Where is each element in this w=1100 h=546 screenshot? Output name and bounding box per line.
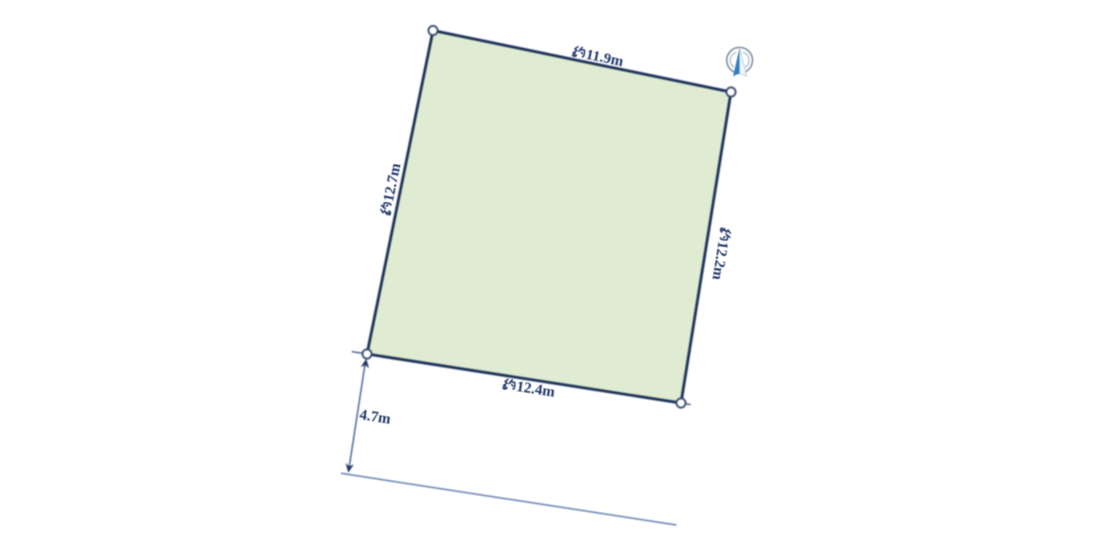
svg-text:12.2m: 12.2m	[709, 240, 731, 281]
svg-text:4.7m: 4.7m	[358, 407, 392, 428]
